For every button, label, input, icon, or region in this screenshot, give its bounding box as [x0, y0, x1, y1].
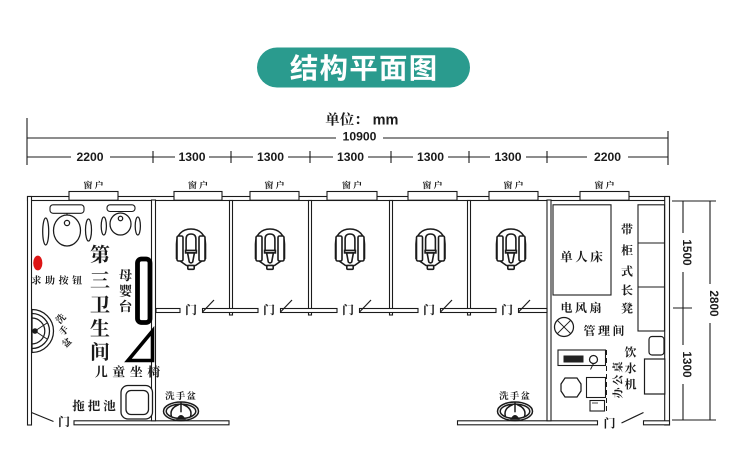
svg-text:1500: 1500: [680, 239, 694, 266]
svg-text:1300: 1300: [494, 150, 521, 164]
svg-text:2200: 2200: [594, 150, 621, 164]
svg-text:10900: 10900: [343, 130, 377, 144]
svg-text:mm: mm: [373, 113, 399, 129]
svg-text:1300: 1300: [257, 150, 284, 164]
svg-text:1300: 1300: [178, 150, 205, 164]
svg-text:2200: 2200: [76, 150, 103, 164]
svg-text:1300: 1300: [417, 150, 444, 164]
svg-text:2800: 2800: [707, 290, 721, 317]
svg-text:1300: 1300: [680, 351, 694, 378]
svg-text:1300: 1300: [337, 150, 364, 164]
